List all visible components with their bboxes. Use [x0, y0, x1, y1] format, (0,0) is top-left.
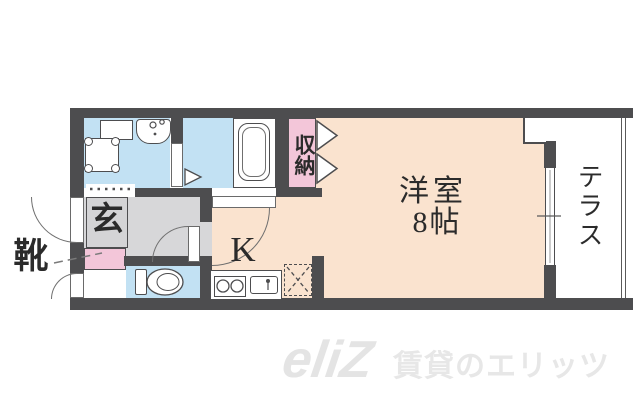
washer-pan-pad [84, 164, 93, 173]
room-size-label: 8帖 [392, 207, 482, 239]
corner-notch [523, 118, 546, 144]
room-name-label: 洋室 [388, 176, 478, 208]
bathroom-floor [183, 118, 233, 188]
kitchen-sink-icon [250, 276, 278, 294]
wall-top [70, 108, 633, 118]
wall-bottom [70, 298, 633, 310]
lower-door-swing-arc [51, 273, 77, 299]
shoes-label: 靴 [8, 239, 54, 276]
storage-label: 収納 [289, 124, 315, 186]
washer-pan-pad [84, 137, 93, 146]
washer-pan-pad [111, 137, 120, 146]
wall-bath-right [276, 118, 288, 197]
washroom-sink-icon [136, 119, 171, 144]
refrigerator-space-icon [284, 264, 312, 296]
hall-door-leaf [188, 226, 200, 262]
sliding-window-icon [545, 168, 555, 265]
terrace-right-line [621, 118, 626, 298]
washroom-threshold [86, 184, 135, 194]
entrance-label: 玄 [86, 203, 128, 238]
kitchen-label: K [227, 232, 259, 269]
room-door-leaf [212, 196, 276, 208]
stove-box [214, 276, 246, 297]
bathroom-door-leaf [171, 143, 183, 187]
wall-window-top [544, 141, 556, 168]
wall-left-mid [70, 243, 84, 273]
watermark-logo: eliZ [279, 330, 377, 390]
floorplan-canvas: 玄 靴 収納 K 洋室 8帖 テラス eliZ 賃貸のエリッツ [0, 0, 640, 416]
shoe-box [84, 248, 126, 270]
watermark-text: 賃貸のエリッツ [393, 341, 610, 385]
washer-pan-pad [111, 164, 120, 173]
wall-hall-room [200, 188, 212, 222]
entry-floor [84, 270, 126, 298]
washer-pan-icon [85, 138, 119, 172]
toilet-tank [135, 269, 147, 295]
wall-left-upper [70, 108, 84, 197]
wall-fridge-right [312, 256, 324, 298]
wall-bathdoor-top [171, 118, 183, 143]
bathtub-inner [242, 127, 266, 177]
bathtub-icon [238, 123, 270, 181]
terrace-label: テラス [574, 156, 602, 256]
